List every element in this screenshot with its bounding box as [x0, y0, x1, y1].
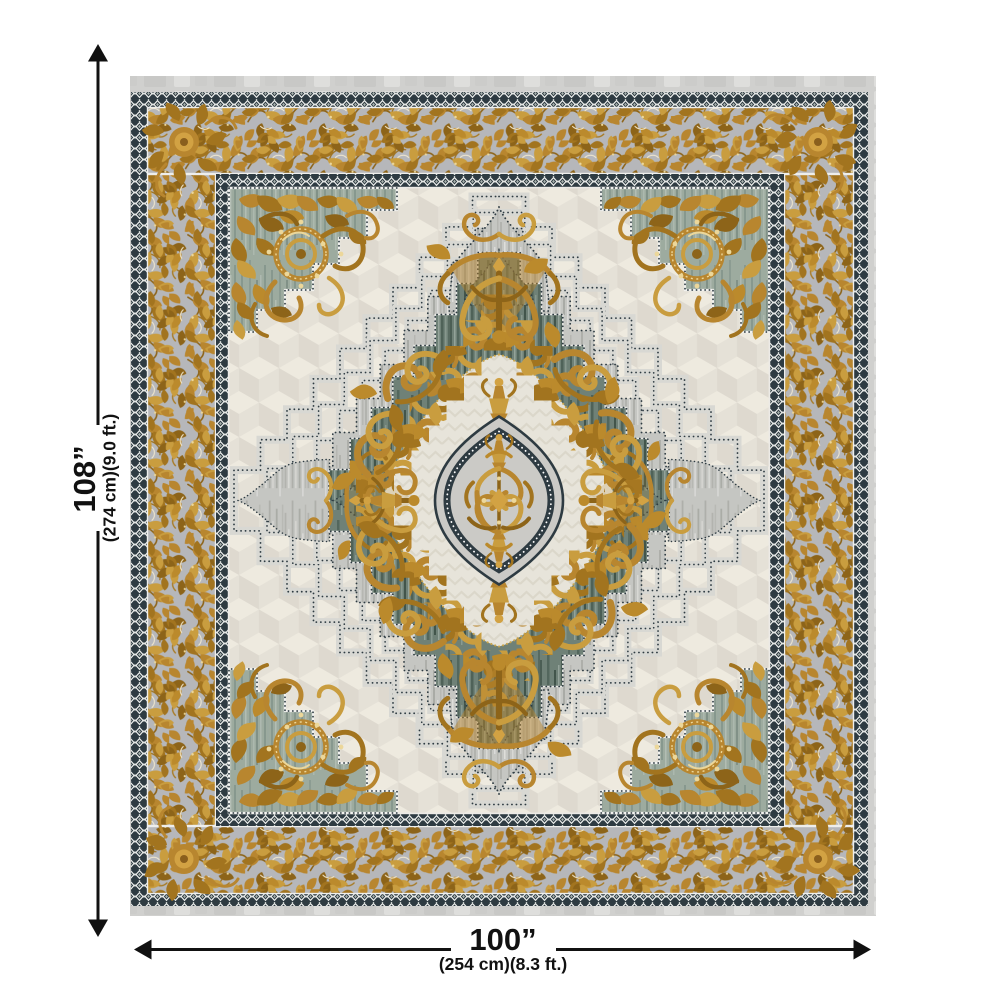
svg-text:100”: 100” [469, 922, 536, 957]
svg-text:(274 cm)(9.0 ft.): (274 cm)(9.0 ft.) [100, 414, 120, 542]
svg-text:108”: 108” [67, 445, 102, 512]
svg-text:(254 cm)(8.3 ft.): (254 cm)(8.3 ft.) [439, 954, 567, 974]
